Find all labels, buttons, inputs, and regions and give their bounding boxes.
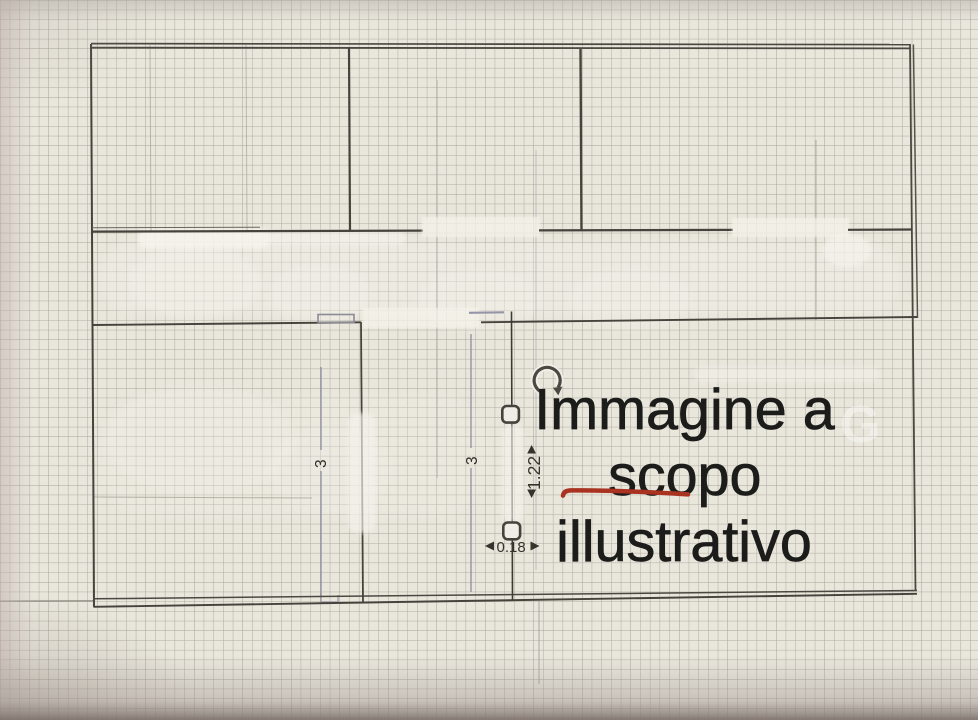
- svg-text:0.18: 0.18: [497, 539, 526, 556]
- svg-text:illustrativo: illustrativo: [556, 510, 812, 574]
- svg-text:G: G: [840, 396, 880, 454]
- svg-text:3: 3: [313, 459, 330, 468]
- svg-text:Immagine a: Immagine a: [534, 378, 834, 442]
- svg-text:scopo: scopo: [608, 444, 761, 508]
- svg-text:1.22: 1.22: [524, 456, 544, 490]
- svg-text:3: 3: [464, 456, 481, 465]
